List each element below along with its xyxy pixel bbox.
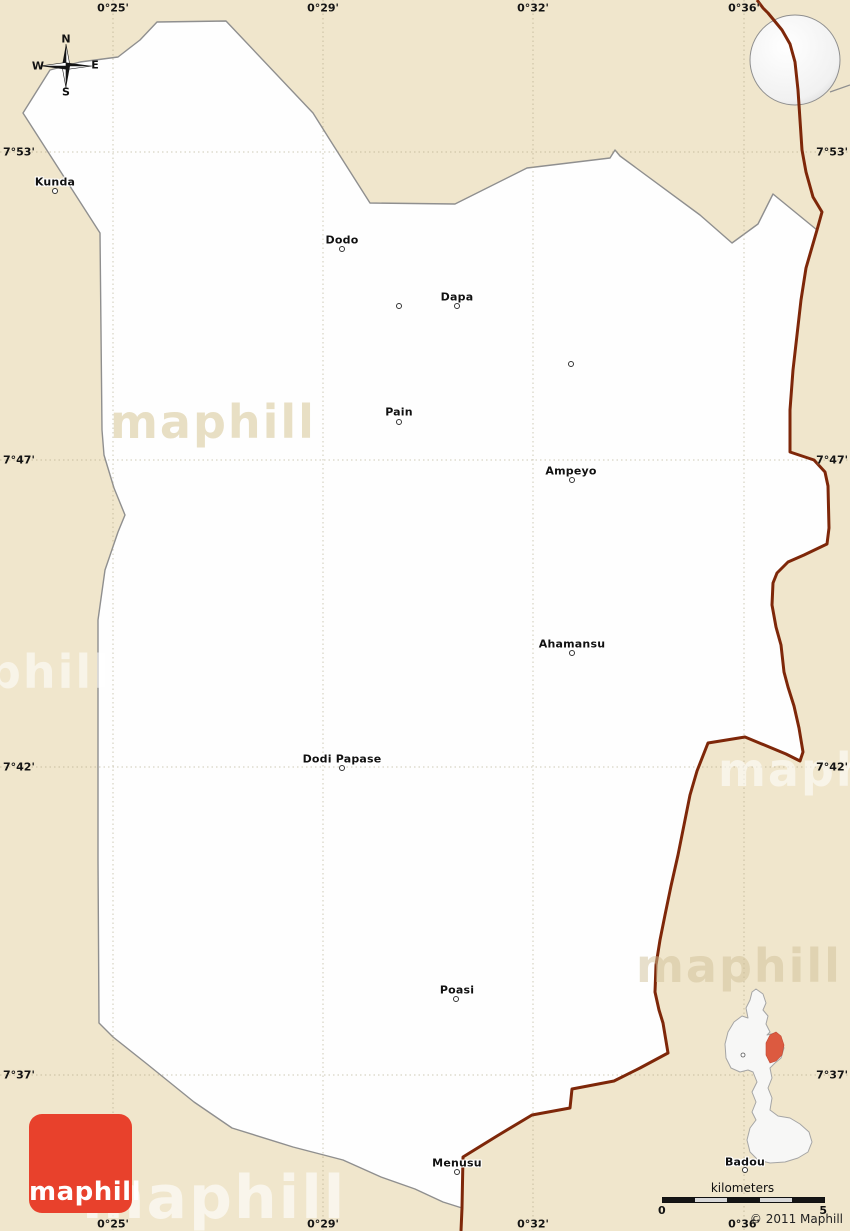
scale-bar-min: 0 [658,1204,666,1217]
scale-bar-segment [792,1198,824,1202]
district-shape [23,21,829,1208]
scale-bar-segment [727,1198,759,1202]
scale-bar-title: kilometers [660,1181,825,1195]
map-graphic [0,0,850,1231]
maphill-logo-text: maphill [29,1177,132,1207]
copyright-notice: © 2011 Maphill [750,1212,843,1226]
inset-town-dot [741,1053,745,1057]
maphill-logo[interactable]: maphill [29,1114,132,1213]
neighbor-boundary-line [830,85,850,92]
scale-bar-segment [695,1198,727,1202]
inset-overview-map [725,989,812,1163]
scale-bar-track [662,1197,825,1203]
scale-bar-segment [760,1198,792,1202]
scale-bar-segment [663,1198,695,1202]
map-canvas: maphillmaphillmaphillmaphillmaphill 0°25… [0,0,850,1231]
inset-region-shape [725,989,812,1163]
